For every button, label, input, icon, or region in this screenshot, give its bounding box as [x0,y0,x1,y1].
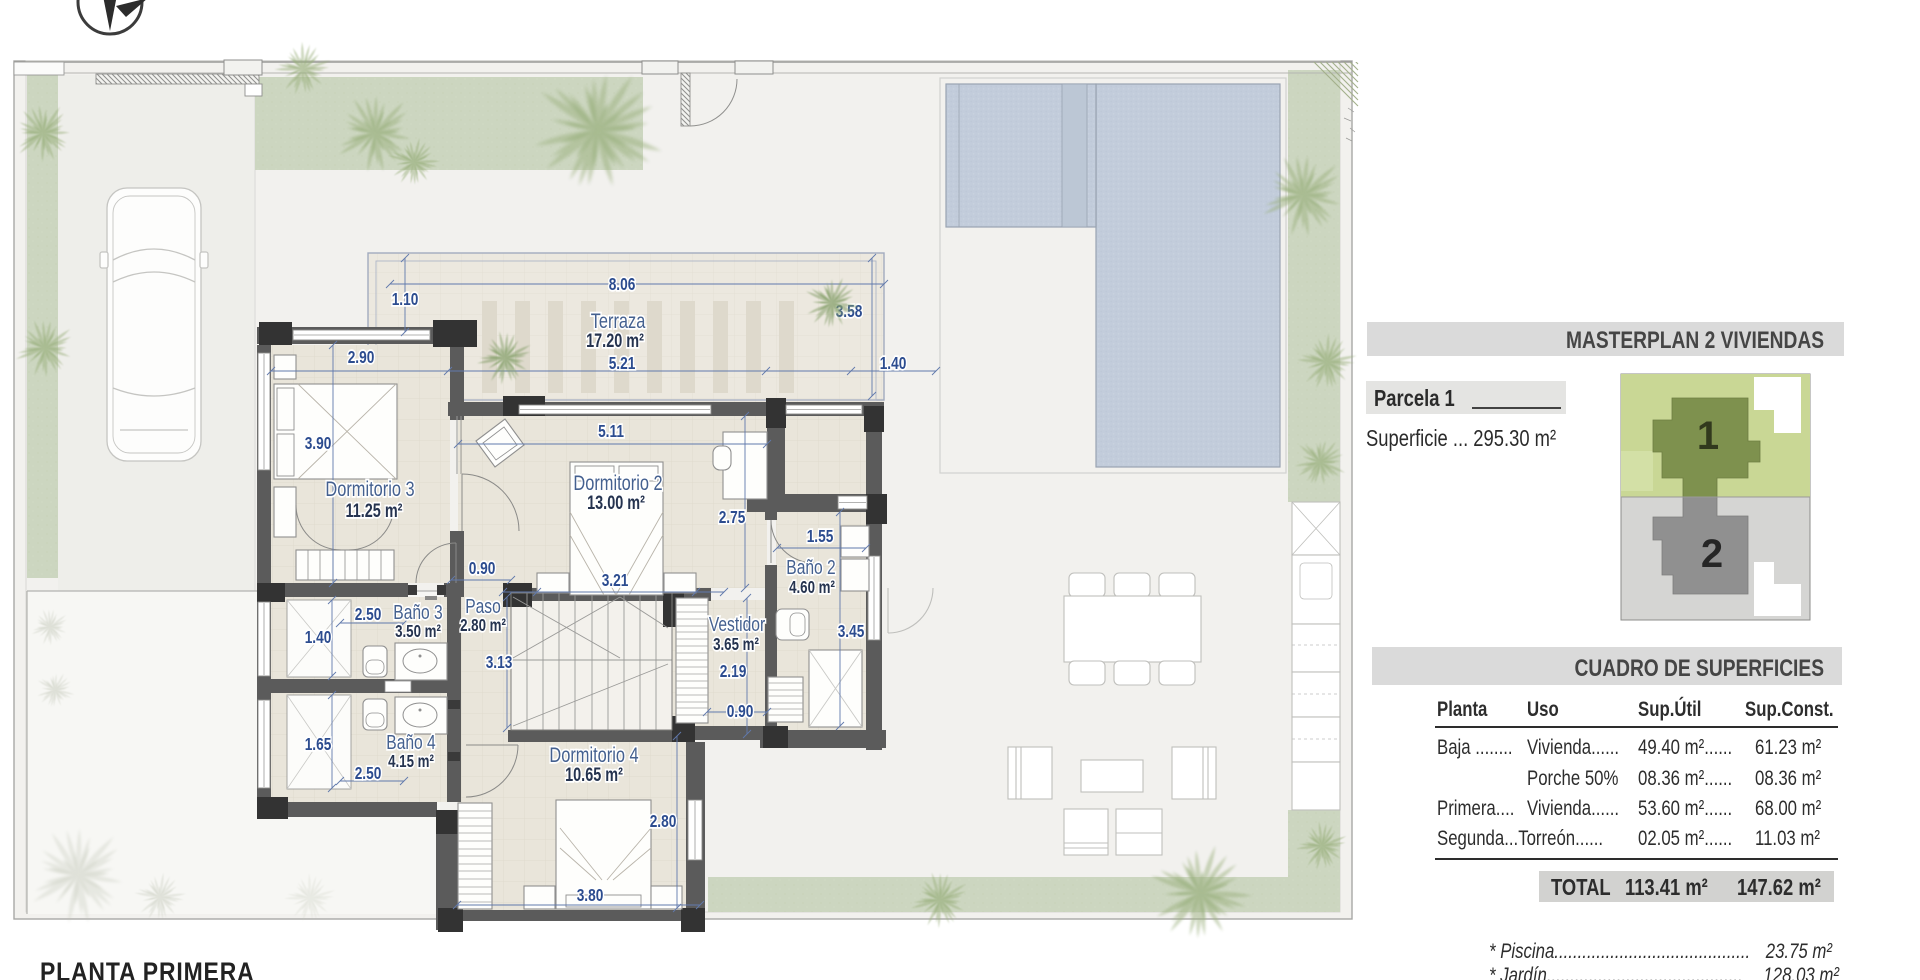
svg-text:2: 2 [1701,532,1723,576]
svg-text:08.36 m²: 08.36 m² [1755,767,1821,790]
svg-text:Sup.Útil: Sup.Útil [1638,697,1701,721]
svg-text:* Jardín......................: * Jardín................................… [1489,964,1743,980]
svg-text:5.11: 5.11 [598,422,624,441]
svg-text:3.21: 3.21 [602,571,629,590]
svg-text:147.62 m²: 147.62 m² [1737,875,1821,900]
svg-text:4.15 m²: 4.15 m² [388,752,434,771]
svg-text:* Piscina.....................: * Piscina...............................… [1489,940,1750,963]
svg-text:1.55: 1.55 [807,527,834,546]
svg-text:0.90: 0.90 [469,559,496,578]
svg-text:Dormitorio 4: Dormitorio 4 [549,743,638,766]
svg-text:3.45: 3.45 [838,622,865,641]
svg-text:Planta: Planta [1437,698,1488,721]
svg-text:Parcela 1: Parcela 1 [1374,386,1455,411]
svg-text:08.36 m²......: 08.36 m²...... [1638,767,1732,790]
svg-text:0.90: 0.90 [727,702,754,721]
svg-text:128.03 m²: 128.03 m² [1763,964,1839,980]
svg-text:Segunda...Torreón......: Segunda...Torreón...... [1437,827,1603,850]
svg-text:2.80: 2.80 [650,812,677,831]
svg-text:113.41 m²: 113.41 m² [1625,875,1708,900]
svg-text:Paso: Paso [465,595,501,617]
svg-text:1.40: 1.40 [305,628,332,647]
svg-text:23.75 m²: 23.75 m² [1765,940,1833,963]
svg-text:Dormitorio 3: Dormitorio 3 [325,477,414,500]
svg-text:1: 1 [1697,414,1719,458]
svg-text:MASTERPLAN 2 VIVIENDAS: MASTERPLAN 2 VIVIENDAS [1566,326,1824,354]
svg-text:Baja ........: Baja ........ [1437,736,1513,759]
svg-text:PLANTA PRIMERA: PLANTA PRIMERA [40,957,255,980]
svg-text:13.00 m²: 13.00 m² [587,492,645,513]
svg-text:3.90: 3.90 [305,434,332,453]
svg-text:2.90: 2.90 [348,348,375,367]
svg-text:Baño 4: Baño 4 [386,731,435,753]
svg-text:61.23 m²: 61.23 m² [1755,736,1821,759]
svg-text:Baño 3: Baño 3 [393,601,442,623]
svg-text:8.06: 8.06 [609,275,636,294]
svg-text:02.05 m²......: 02.05 m²...... [1638,827,1732,850]
svg-text:2.80 m²: 2.80 m² [460,616,506,635]
svg-text:Uso: Uso [1527,698,1559,721]
svg-text:3.50 m²: 3.50 m² [395,622,441,641]
svg-text:Porche 50%: Porche 50% [1527,767,1619,790]
svg-text:Dormitorio 2: Dormitorio 2 [573,471,662,494]
svg-text:CUADRO DE SUPERFICIES: CUADRO DE SUPERFICIES [1575,654,1824,682]
svg-text:Superficie ... 295.30 m²: Superficie ... 295.30 m² [1366,426,1556,451]
svg-text:Terraza: Terraza [591,309,646,332]
svg-text:10.65 m²: 10.65 m² [565,764,623,785]
svg-text:3.80: 3.80 [577,886,604,905]
svg-text:11.25 m²: 11.25 m² [346,500,403,521]
svg-text:53.60 m²......: 53.60 m²...... [1638,797,1732,820]
svg-text:2.50: 2.50 [355,605,382,624]
svg-text:2.50: 2.50 [355,764,382,783]
svg-text:1.10: 1.10 [392,290,419,309]
svg-text:2.75: 2.75 [719,508,746,527]
svg-text:Vestidor: Vestidor [709,613,765,635]
svg-text:Sup.Const.: Sup.Const. [1745,698,1834,721]
svg-text:Vivienda......: Vivienda...... [1527,797,1619,820]
svg-text:4.60 m²: 4.60 m² [789,578,835,597]
svg-text:Vivienda......: Vivienda...... [1527,736,1619,759]
svg-text:2.19: 2.19 [720,662,747,681]
svg-text:5.21: 5.21 [609,354,636,373]
svg-text:3.13: 3.13 [486,653,513,672]
svg-text:68.00 m²: 68.00 m² [1755,797,1821,820]
svg-text:49.40 m²......: 49.40 m²...... [1638,736,1732,759]
svg-text:11.03 m²: 11.03 m² [1755,827,1820,850]
svg-text:1.65: 1.65 [305,735,332,754]
svg-text:1.40: 1.40 [880,354,907,373]
svg-text:17.20 m²: 17.20 m² [586,330,644,351]
svg-text:Baño 2: Baño 2 [786,556,835,578]
svg-text:3.65 m²: 3.65 m² [713,635,759,654]
svg-text:TOTAL: TOTAL [1551,875,1611,900]
svg-text:Primera....: Primera.... [1437,797,1514,820]
